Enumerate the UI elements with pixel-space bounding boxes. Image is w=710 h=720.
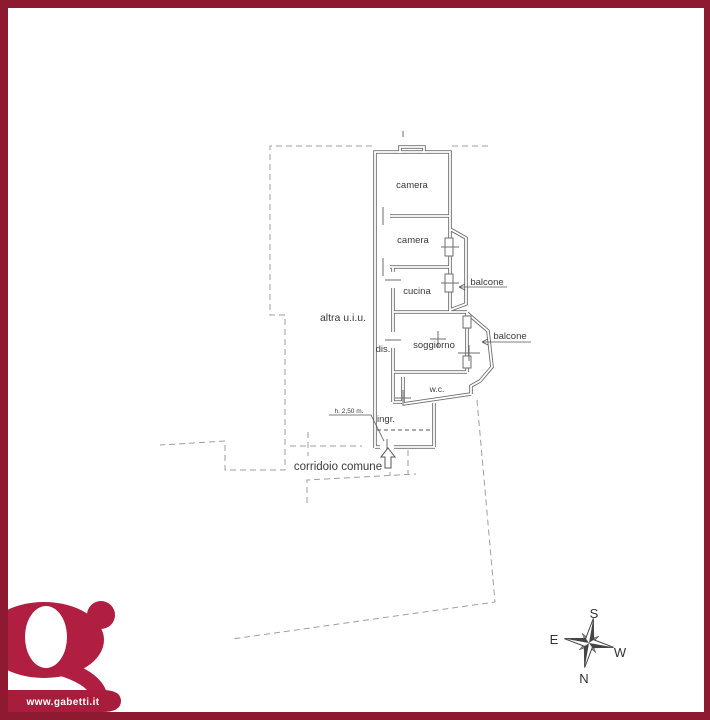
gabetti-logo [0, 601, 115, 700]
label-height-note: h. 2,50 m. [335, 408, 364, 415]
compass-letter-w: W [614, 645, 627, 660]
label-balcone-1: balcone [470, 277, 503, 288]
property-boundary [160, 146, 495, 639]
room-label-cucina: cucina [403, 286, 431, 297]
label-altra-uiu: altra u.i.u. [320, 312, 366, 324]
compass-letter-s: S [590, 606, 599, 621]
room-label-soggiorno: soggiorno [413, 340, 455, 351]
website-banner: www.gabetti.it [8, 690, 121, 712]
label-corridoio-comune: corridoio comune [294, 461, 382, 473]
window [463, 316, 471, 328]
apartment-walls [375, 147, 492, 448]
leader-lines [329, 284, 531, 441]
window [463, 356, 471, 368]
compass-rose-icon: S E W N [550, 606, 627, 686]
compass-letter-e: E [550, 632, 559, 647]
website-url: www.gabetti.it [25, 697, 99, 708]
label-balcone-2: balcone [493, 331, 526, 342]
room-label-wc: w.c. [429, 384, 445, 394]
floor-plan-page: camera camera cucina soggiorno w.c. dis.… [0, 0, 710, 720]
compass-letter-n: N [579, 671, 588, 686]
room-label-camera-1: camera [396, 180, 428, 191]
entrance-arrow-icon [381, 448, 395, 468]
room-label-dis: dis. [376, 344, 391, 355]
room-label-camera-2: camera [397, 235, 429, 246]
room-label-ingr: ingr. [377, 414, 395, 425]
floor-plan-canvas: camera camera cucina soggiorno w.c. dis.… [0, 0, 710, 720]
